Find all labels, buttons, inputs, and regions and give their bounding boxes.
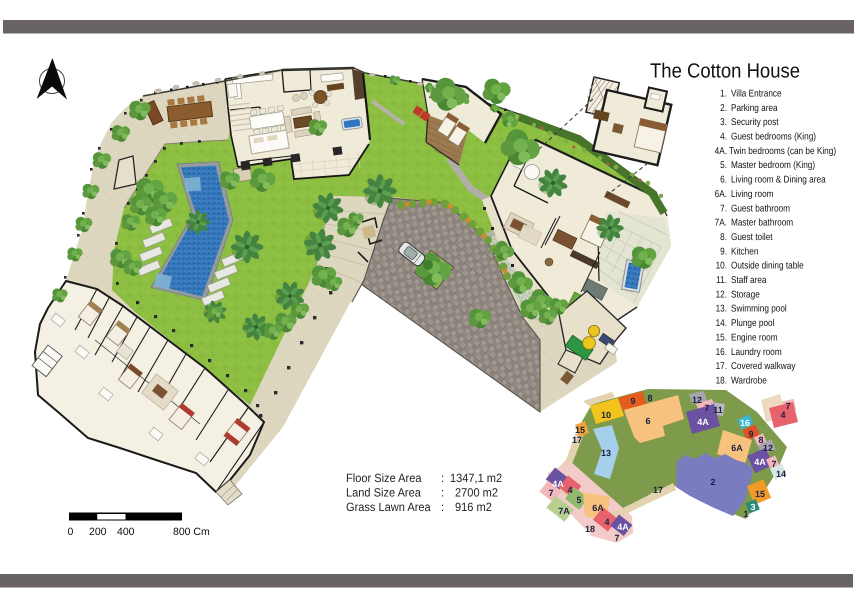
svg-text:4A: 4A [617, 522, 629, 532]
svg-text:916 m2: 916 m2 [455, 500, 492, 514]
svg-text:14: 14 [776, 469, 786, 479]
svg-text:Covered walkway: Covered walkway [731, 361, 796, 372]
svg-text:9.: 9. [720, 246, 727, 257]
svg-text:4A: 4A [697, 417, 709, 427]
svg-text:14.: 14. [716, 318, 727, 329]
svg-text:7: 7 [785, 401, 790, 411]
svg-text:7A.: 7A. [715, 218, 727, 229]
svg-text:5: 5 [576, 495, 581, 505]
svg-text:15: 15 [575, 425, 585, 435]
svg-text:Guest toilet: Guest toilet [731, 232, 773, 243]
svg-text:13.: 13. [716, 304, 727, 315]
svg-text:7: 7 [548, 488, 553, 498]
svg-text:3: 3 [750, 502, 755, 512]
svg-text:Floor Size Area: Floor Size Area [346, 471, 422, 485]
svg-text:4A: 4A [552, 479, 564, 489]
svg-text:16: 16 [740, 418, 750, 428]
svg-text:Villa Entrance: Villa Entrance [731, 89, 782, 100]
svg-text:6A: 6A [592, 503, 604, 513]
svg-text:15.: 15. [716, 332, 727, 343]
svg-text::: : [441, 500, 444, 514]
svg-text:Wardrobe: Wardrobe [731, 376, 767, 387]
svg-text:17: 17 [653, 485, 663, 495]
svg-text:2700 m2: 2700 m2 [455, 486, 498, 500]
svg-text:200: 200 [89, 526, 107, 538]
svg-text:12.: 12. [716, 289, 727, 300]
svg-text:4: 4 [780, 410, 785, 420]
svg-text:4A: 4A [754, 457, 766, 467]
svg-text:12: 12 [692, 395, 702, 405]
svg-text:800 Cm: 800 Cm [173, 526, 210, 538]
svg-text:Living room & Dining area: Living room & Dining area [731, 175, 826, 186]
svg-text:Guest bedrooms (King): Guest bedrooms (King) [731, 132, 816, 143]
svg-text:6.: 6. [720, 175, 727, 186]
svg-text::: : [441, 471, 444, 485]
svg-text:17: 17 [572, 435, 582, 445]
svg-text:Land Size Area: Land Size Area [346, 486, 421, 500]
svg-text:5.: 5. [720, 160, 727, 171]
svg-text:Staff area: Staff area [731, 275, 767, 286]
svg-text:7: 7 [704, 403, 709, 413]
svg-text:4.: 4. [720, 132, 727, 143]
svg-text:400: 400 [117, 526, 135, 538]
svg-text:Security post: Security post [731, 117, 779, 128]
svg-text:3.: 3. [720, 117, 727, 128]
svg-text:4: 4 [567, 485, 572, 495]
svg-text:Plunge pool: Plunge pool [731, 318, 774, 329]
svg-text:Guest bathroom: Guest bathroom [731, 203, 790, 214]
svg-text:11.: 11. [716, 275, 727, 286]
svg-text:9: 9 [630, 396, 635, 406]
svg-text:1: 1 [743, 509, 748, 519]
svg-text:7: 7 [614, 533, 619, 543]
svg-text:6A: 6A [731, 443, 743, 453]
svg-text:4A.: 4A. [715, 146, 727, 157]
svg-text:18: 18 [585, 524, 595, 534]
svg-text:6A.: 6A. [715, 189, 727, 200]
svg-text:Grass Lawn Area: Grass Lawn Area [346, 500, 431, 514]
svg-text:7: 7 [771, 459, 776, 469]
svg-text:13: 13 [601, 448, 611, 458]
svg-text:11: 11 [713, 405, 723, 415]
svg-text::: : [441, 486, 444, 500]
svg-text:2: 2 [710, 477, 715, 487]
svg-text:18.: 18. [716, 376, 727, 387]
svg-text:Swimming pool: Swimming pool [731, 304, 787, 315]
svg-text:4: 4 [604, 517, 609, 527]
svg-text:The Cotton House: The Cotton House [650, 60, 800, 83]
svg-text:7.: 7. [720, 203, 727, 214]
svg-text:2.: 2. [720, 103, 727, 114]
svg-text:1.: 1. [720, 89, 727, 100]
svg-text:Parking area: Parking area [731, 103, 778, 114]
svg-text:6: 6 [645, 416, 650, 426]
svg-text:Outside dining table: Outside dining table [731, 261, 804, 272]
svg-text:0: 0 [68, 526, 74, 538]
svg-text:Twin bedrooms (can be King): Twin bedrooms (can be King) [729, 146, 836, 157]
svg-text:17.: 17. [716, 361, 727, 372]
svg-text:Master bathroom: Master bathroom [731, 218, 793, 229]
svg-text:15: 15 [755, 489, 765, 499]
svg-text:10: 10 [601, 410, 611, 420]
svg-text:10.: 10. [716, 261, 727, 272]
svg-text:16.: 16. [716, 347, 727, 358]
svg-text:8.: 8. [720, 232, 727, 243]
svg-text:9: 9 [748, 429, 753, 439]
svg-text:12: 12 [763, 443, 773, 453]
svg-text:Living room: Living room [731, 189, 774, 200]
svg-text:Master bedroom (King): Master bedroom (King) [731, 160, 815, 171]
svg-text:Storage: Storage [731, 289, 760, 300]
svg-text:Kitchen: Kitchen [731, 246, 758, 257]
svg-text:Engine room: Engine room [731, 332, 778, 343]
svg-text:Laundry room: Laundry room [731, 347, 782, 358]
svg-text:7A: 7A [558, 506, 570, 516]
svg-text:1347,1 m2: 1347,1 m2 [450, 471, 502, 485]
svg-text:8: 8 [647, 393, 652, 403]
